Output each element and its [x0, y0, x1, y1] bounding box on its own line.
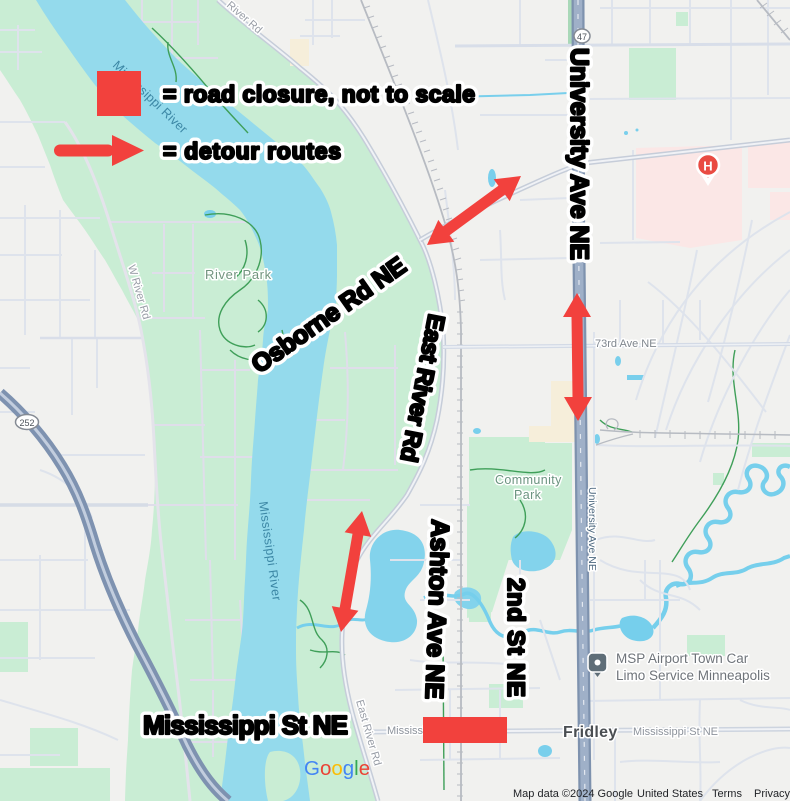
- svg-text:Privacy: Privacy: [754, 788, 790, 800]
- svg-text:Map data ©2024 Google: Map data ©2024 Google: [513, 788, 633, 800]
- svg-text:47: 47: [577, 32, 587, 42]
- svg-text:Terms: Terms: [712, 788, 742, 800]
- svg-text:Community: Community: [495, 473, 562, 487]
- svg-text:Limo Service Minneapolis: Limo Service Minneapolis: [616, 668, 770, 683]
- svg-text:= detour routes: = detour routes: [163, 138, 341, 164]
- svg-text:University Ave NE: University Ave NE: [586, 487, 598, 571]
- svg-text:MSP Airport Town Car: MSP Airport Town Car: [616, 651, 749, 666]
- svg-text:River Park: River Park: [205, 267, 272, 282]
- svg-text:2nd St NE: 2nd St NE: [502, 578, 529, 697]
- svg-text:= road closure, not to scale: = road closure, not to scale: [163, 81, 475, 107]
- svg-text:H: H: [703, 159, 712, 174]
- svg-text:Google: Google: [304, 757, 370, 780]
- svg-text:73rd Ave NE: 73rd Ave NE: [595, 338, 657, 350]
- svg-text:Park: Park: [514, 488, 542, 502]
- svg-text:Mississippi St NE: Mississippi St NE: [143, 710, 348, 740]
- svg-text:United States: United States: [637, 788, 704, 800]
- svg-text:University Ave NE: University Ave NE: [565, 48, 593, 260]
- svg-text:Fridley: Fridley: [563, 724, 618, 741]
- svg-text:252: 252: [19, 418, 34, 428]
- svg-text:Mississippi St NE: Mississippi St NE: [633, 726, 718, 738]
